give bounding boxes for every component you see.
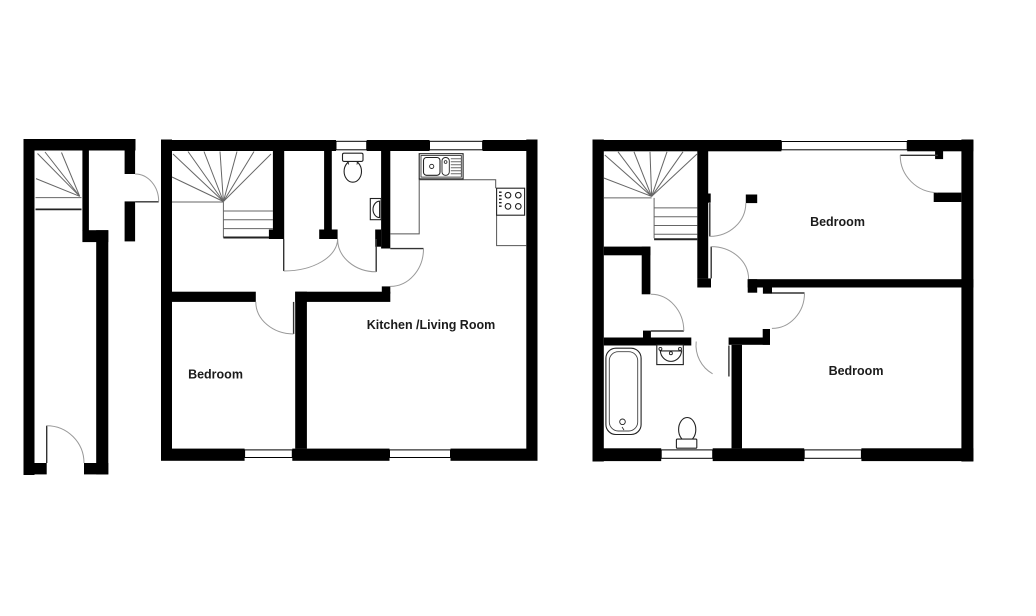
svg-text:Bedroom: Bedroom (810, 215, 865, 229)
svg-text:Kitchen /Living Room: Kitchen /Living Room (367, 318, 495, 332)
svg-text:Bedroom: Bedroom (829, 364, 884, 378)
svg-text:Bedroom: Bedroom (188, 368, 243, 382)
